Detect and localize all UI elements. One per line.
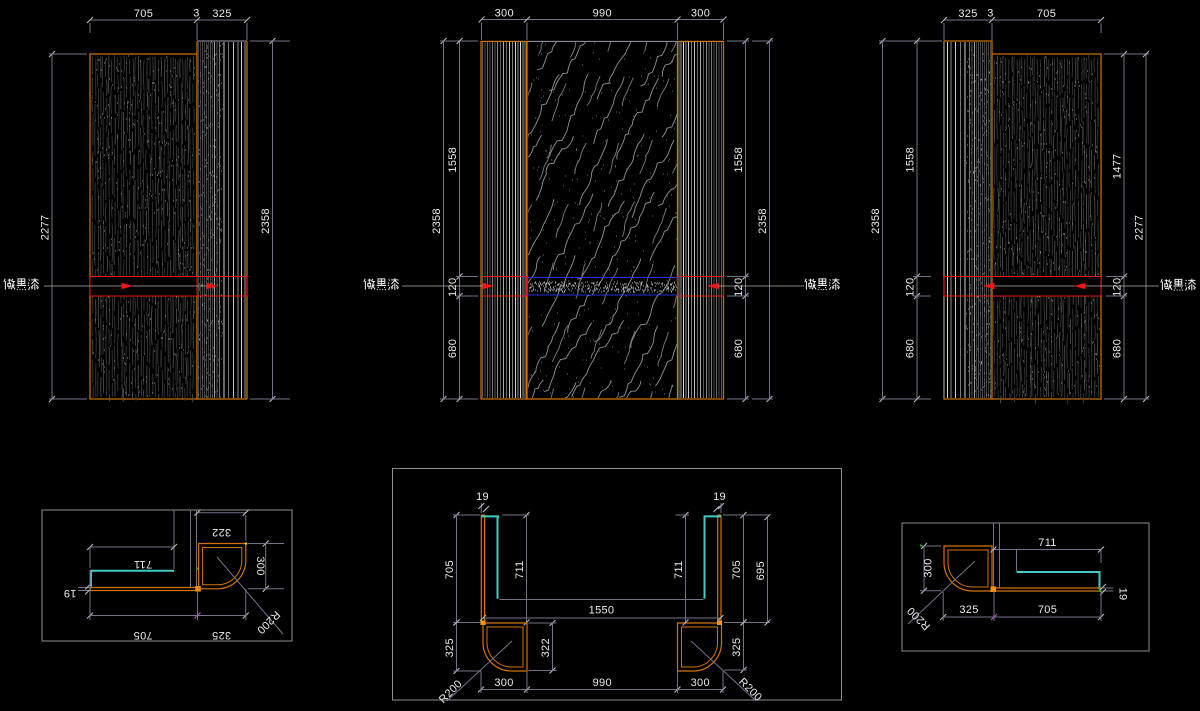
svg-text:325: 325 bbox=[959, 604, 978, 616]
svg-text:1477: 1477 bbox=[1112, 153, 1124, 179]
svg-text:2358: 2358 bbox=[870, 208, 882, 234]
svg-text:711: 711 bbox=[134, 558, 152, 570]
svg-text:680: 680 bbox=[905, 339, 917, 358]
svg-text:1558: 1558 bbox=[733, 147, 745, 173]
svg-text:300: 300 bbox=[254, 556, 266, 575]
svg-text:19: 19 bbox=[713, 491, 726, 503]
svg-text:680: 680 bbox=[447, 339, 459, 358]
svg-text:680: 680 bbox=[1112, 339, 1124, 358]
svg-text:705: 705 bbox=[1038, 604, 1057, 616]
svg-text:325: 325 bbox=[958, 8, 977, 20]
svg-text:711: 711 bbox=[673, 561, 685, 579]
svg-text:300: 300 bbox=[494, 677, 513, 689]
svg-text:990: 990 bbox=[593, 677, 612, 689]
svg-text:990: 990 bbox=[593, 8, 612, 20]
svg-text:1558: 1558 bbox=[905, 147, 917, 173]
svg-text:325: 325 bbox=[212, 629, 231, 641]
svg-text:705: 705 bbox=[133, 629, 152, 641]
svg-text:120: 120 bbox=[733, 278, 745, 297]
svg-text:2358: 2358 bbox=[260, 208, 272, 234]
svg-text:711: 711 bbox=[514, 561, 526, 579]
svg-text:2358: 2358 bbox=[431, 208, 443, 234]
svg-text:1558: 1558 bbox=[447, 147, 459, 173]
svg-text:3: 3 bbox=[987, 8, 993, 20]
svg-text:2277: 2277 bbox=[40, 215, 52, 241]
svg-text:120: 120 bbox=[447, 278, 459, 297]
svg-text:711: 711 bbox=[1038, 537, 1056, 549]
svg-text:680: 680 bbox=[733, 339, 745, 358]
svg-text:120: 120 bbox=[905, 278, 917, 297]
svg-text:325: 325 bbox=[212, 8, 231, 20]
svg-text:3: 3 bbox=[193, 8, 199, 20]
svg-text:300: 300 bbox=[691, 8, 710, 20]
svg-text:325: 325 bbox=[444, 638, 456, 657]
svg-text:705: 705 bbox=[134, 8, 153, 20]
svg-text:120: 120 bbox=[1112, 278, 1124, 297]
svg-text:300: 300 bbox=[691, 677, 710, 689]
svg-text:300: 300 bbox=[495, 8, 514, 20]
svg-text:2358: 2358 bbox=[757, 208, 769, 234]
svg-text:300: 300 bbox=[923, 558, 935, 577]
svg-text:19: 19 bbox=[64, 587, 77, 599]
svg-text:2277: 2277 bbox=[1134, 215, 1146, 241]
svg-text:322: 322 bbox=[540, 638, 552, 657]
svg-text:1550: 1550 bbox=[589, 605, 615, 617]
svg-text:325: 325 bbox=[731, 638, 743, 657]
svg-text:695: 695 bbox=[755, 561, 767, 580]
svg-text:19: 19 bbox=[1117, 588, 1129, 601]
svg-text:705: 705 bbox=[444, 560, 456, 579]
svg-text:705: 705 bbox=[731, 560, 743, 579]
svg-text:322: 322 bbox=[212, 526, 231, 538]
svg-text:705: 705 bbox=[1037, 8, 1056, 20]
svg-text:19: 19 bbox=[476, 491, 489, 503]
